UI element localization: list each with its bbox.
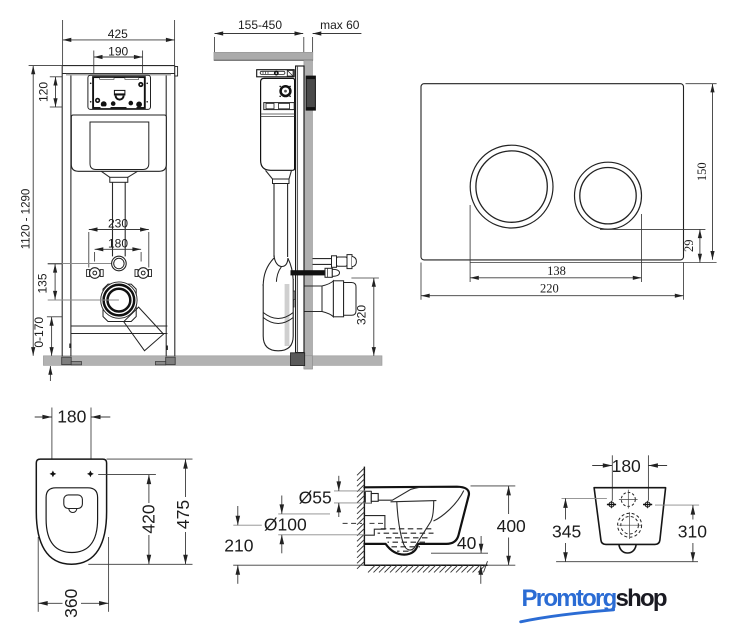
svg-text:Ø55: Ø55 xyxy=(299,487,332,507)
svg-text:180: 180 xyxy=(612,456,641,476)
svg-text:135: 135 xyxy=(36,273,50,293)
svg-text:400: 400 xyxy=(497,516,526,536)
svg-text:150: 150 xyxy=(695,162,709,181)
svg-text:120: 120 xyxy=(37,82,51,102)
svg-text:138: 138 xyxy=(547,264,566,278)
svg-text:155-450: 155-450 xyxy=(238,18,282,32)
svg-text:220: 220 xyxy=(540,282,559,296)
svg-text:180: 180 xyxy=(108,236,128,250)
svg-text:360: 360 xyxy=(61,588,81,617)
svg-text:345: 345 xyxy=(552,521,581,541)
svg-text:475: 475 xyxy=(173,500,193,529)
svg-text:0-170: 0-170 xyxy=(32,317,46,348)
svg-text:1120 - 1290: 1120 - 1290 xyxy=(21,189,33,250)
svg-text:190: 190 xyxy=(108,45,128,59)
svg-text:425: 425 xyxy=(108,27,128,41)
svg-text:Promtorgshop: Promtorgshop xyxy=(522,585,667,612)
svg-text:230: 230 xyxy=(108,217,128,231)
svg-text:40: 40 xyxy=(457,533,477,553)
svg-text:420: 420 xyxy=(138,504,158,533)
svg-text:max 60: max 60 xyxy=(320,18,360,32)
svg-text:180: 180 xyxy=(57,406,86,426)
svg-text:310: 310 xyxy=(678,521,707,541)
svg-text:29: 29 xyxy=(682,240,696,253)
svg-text:320: 320 xyxy=(354,305,368,325)
svg-text:Ø100: Ø100 xyxy=(264,514,307,534)
svg-text:210: 210 xyxy=(224,535,253,555)
